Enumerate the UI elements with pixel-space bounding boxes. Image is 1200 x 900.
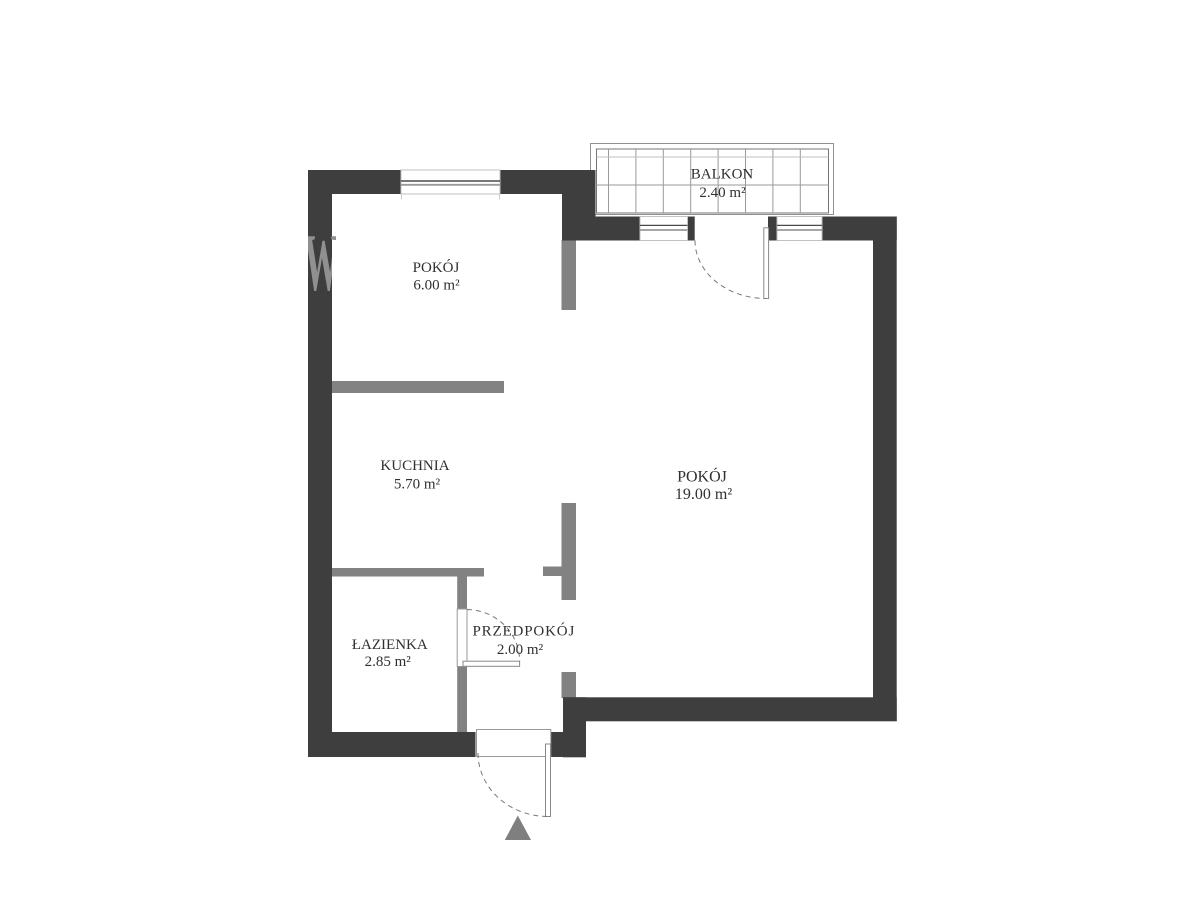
svg-text:BALKON: BALKON <box>691 167 754 183</box>
svg-text:19.00 m²: 19.00 m² <box>675 486 732 503</box>
svg-text:2.40 m²: 2.40 m² <box>699 185 746 201</box>
svg-text:POKÓJ: POKÓJ <box>677 467 727 486</box>
svg-text:POKÓJ: POKÓJ <box>413 259 460 276</box>
svg-text:PRZEDPOKÓJ: PRZEDPOKÓJ <box>472 623 575 640</box>
svg-text:2.85 m²: 2.85 m² <box>365 654 412 670</box>
svg-text:5.70 m²: 5.70 m² <box>394 477 441 493</box>
svg-text:KUCHNIA: KUCHNIA <box>380 458 449 474</box>
svg-text:ŁAZIENKA: ŁAZIENKA <box>352 637 428 653</box>
svg-text:6.00 m²: 6.00 m² <box>413 277 460 293</box>
svg-text:2.00 m²: 2.00 m² <box>497 642 544 658</box>
